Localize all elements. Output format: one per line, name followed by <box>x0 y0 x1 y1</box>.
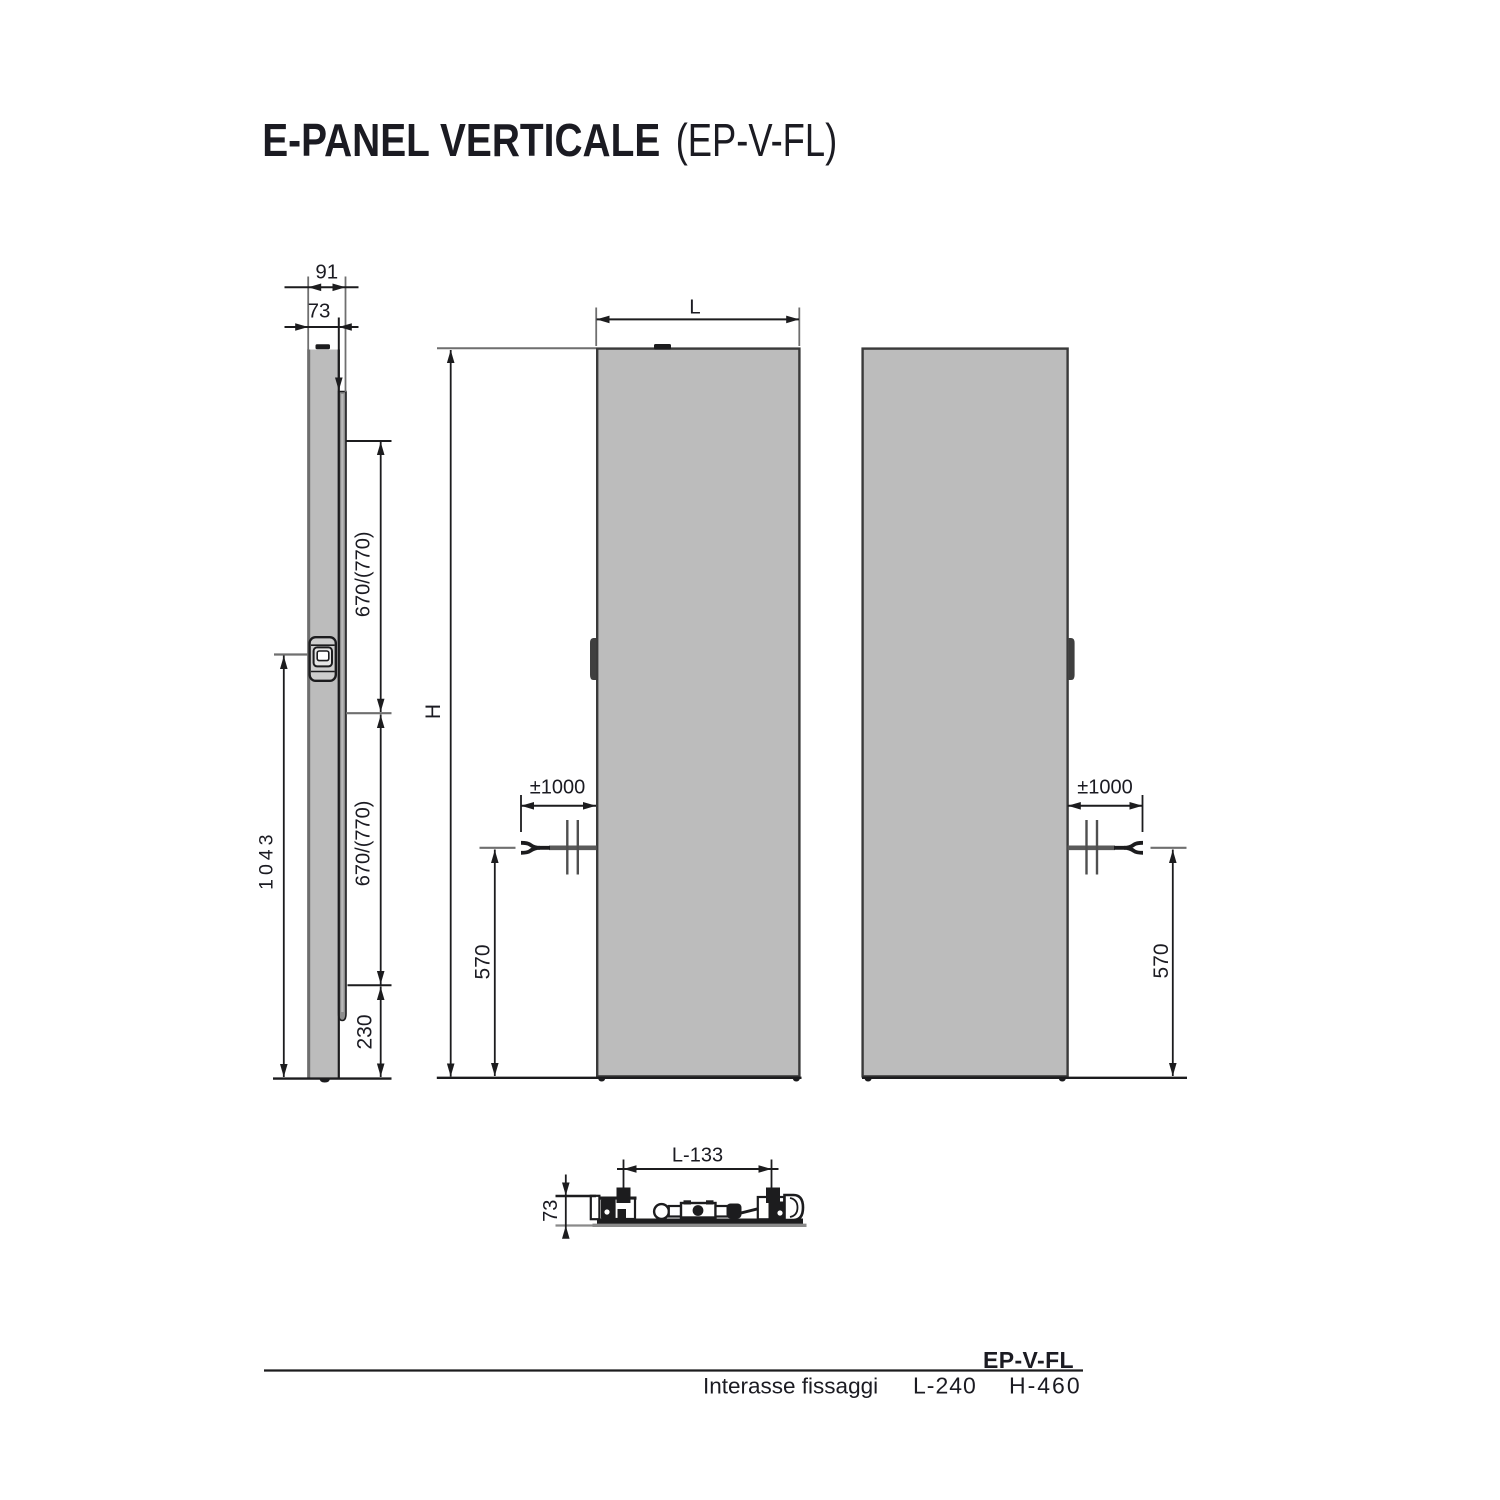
svg-text:570: 570 <box>472 944 495 979</box>
svg-text:H: H <box>422 704 445 719</box>
svg-text:73: 73 <box>540 1200 562 1222</box>
svg-text:L-133: L-133 <box>672 1145 723 1167</box>
svg-text:H-460: H-460 <box>1009 1373 1082 1399</box>
svg-text:570: 570 <box>1150 943 1173 978</box>
svg-text:EP-V-FL: EP-V-FL <box>983 1347 1074 1373</box>
svg-text:670/(770): 670/(770) <box>353 531 375 617</box>
svg-text:(EP-V-FL): (EP-V-FL) <box>676 114 837 166</box>
svg-text:1043: 1043 <box>256 831 278 890</box>
svg-text:E-PANEL VERTICALE: E-PANEL VERTICALE <box>262 115 660 167</box>
svg-text:73: 73 <box>308 300 331 323</box>
svg-text:230: 230 <box>354 1014 377 1049</box>
svg-text:670/(770): 670/(770) <box>353 801 375 887</box>
svg-text:±1000: ±1000 <box>1077 777 1132 799</box>
svg-text:91: 91 <box>315 261 338 284</box>
svg-text:±1000: ±1000 <box>530 777 585 799</box>
svg-text:L: L <box>689 296 700 319</box>
svg-text:Interasse fissaggi: Interasse fissaggi <box>703 1374 878 1399</box>
svg-text:L-240: L-240 <box>913 1373 977 1399</box>
